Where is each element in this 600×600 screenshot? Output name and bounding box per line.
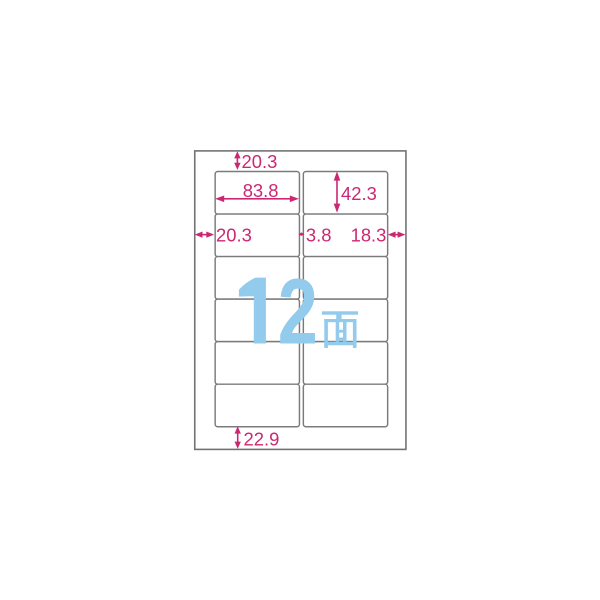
svg-text:20.3: 20.3: [216, 225, 252, 246]
svg-text:18.3: 18.3: [351, 225, 387, 246]
svg-text:20.3: 20.3: [242, 151, 278, 172]
svg-text:2: 2: [278, 260, 318, 364]
svg-text:22.9: 22.9: [244, 428, 280, 449]
svg-text:3.8: 3.8: [306, 225, 332, 246]
svg-text:83.8: 83.8: [243, 180, 279, 201]
svg-text:42.3: 42.3: [341, 183, 377, 204]
